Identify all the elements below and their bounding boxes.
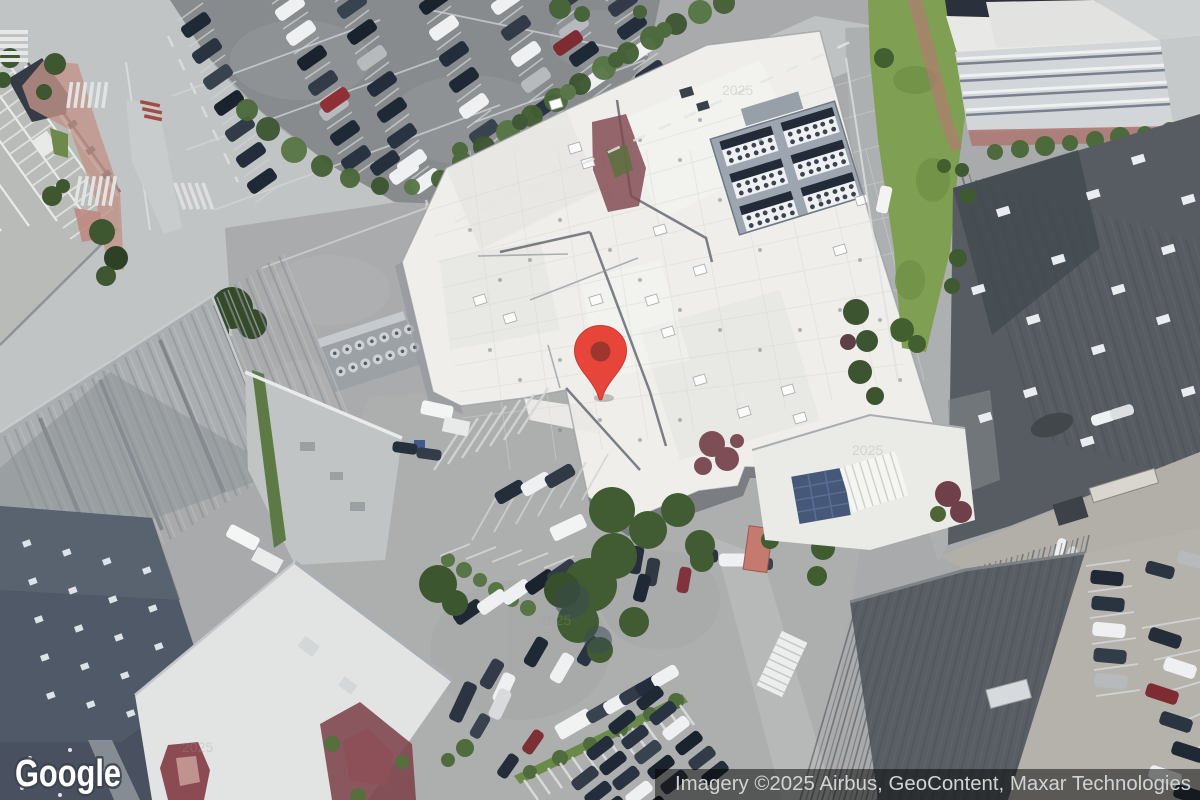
svg-text:2025: 2025 [852,442,883,458]
svg-text:2025: 2025 [540,612,571,628]
svg-text:2025: 2025 [182,739,213,755]
svg-text:2025: 2025 [722,82,753,98]
svg-text:Imagery ©2025 Airbus, GeoConte: Imagery ©2025 Airbus, GeoContent, Maxar … [675,773,1191,795]
svg-text:Google: Google [15,753,121,795]
